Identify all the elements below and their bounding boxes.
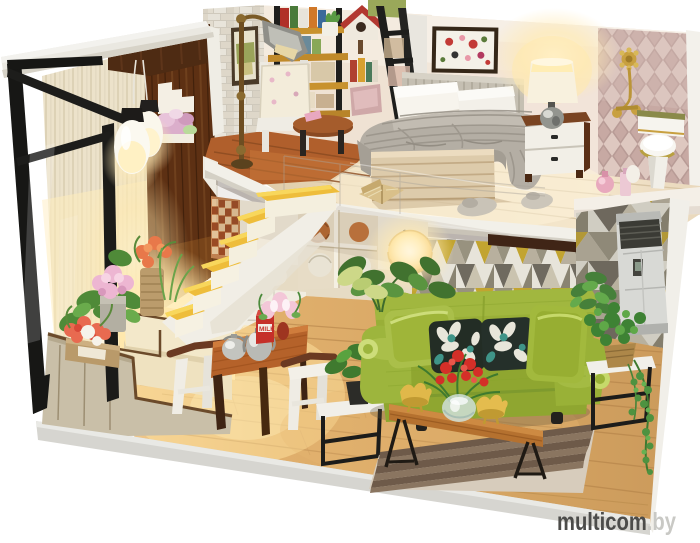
svg-text:MILK: MILK [259, 326, 275, 333]
svg-text:multicom.by: multicom.by [557, 508, 676, 536]
